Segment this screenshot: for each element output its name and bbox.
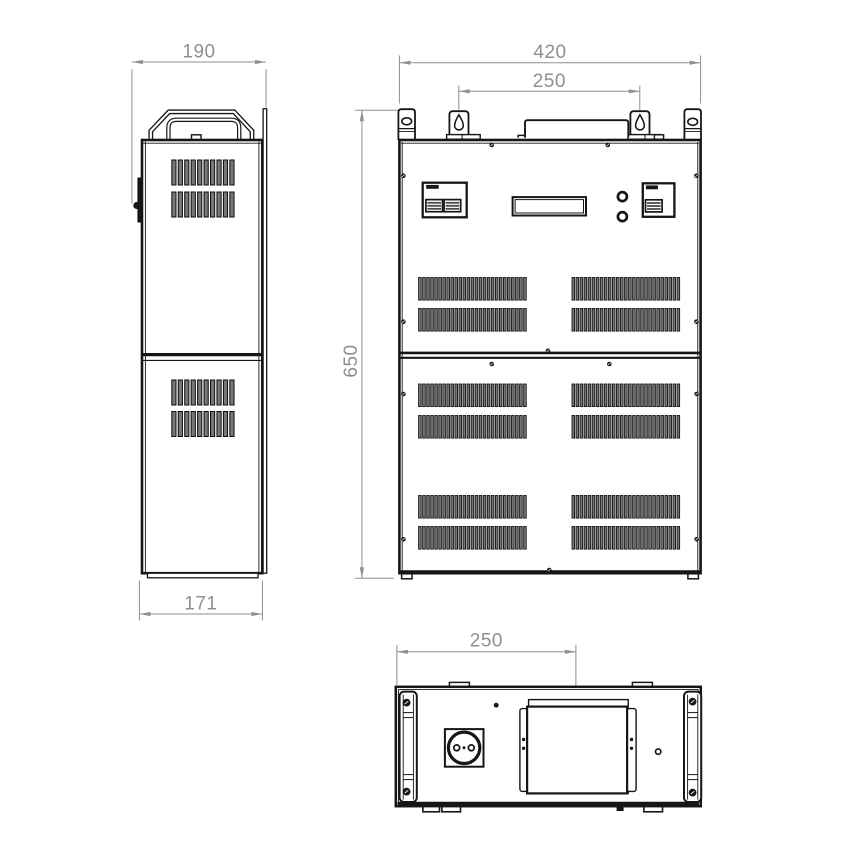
vent-slot <box>230 160 234 185</box>
vent-slot <box>217 412 221 437</box>
vent-slot <box>512 527 515 550</box>
top-raised-plate <box>518 120 628 138</box>
vent-slot <box>230 380 234 405</box>
vent-slot <box>641 527 644 550</box>
vent-slot <box>520 278 523 301</box>
vent-slot <box>495 309 498 332</box>
terminal-cover <box>520 700 636 794</box>
vent-slot <box>520 309 523 332</box>
vent-slot <box>487 496 490 519</box>
vent-slot <box>185 160 189 185</box>
vent-slot <box>641 384 644 407</box>
vent-slot <box>423 278 426 301</box>
vent-slot <box>439 278 442 301</box>
vent-slot <box>230 412 234 437</box>
brand-label <box>426 185 439 189</box>
vent-slot <box>588 527 591 550</box>
vent-slot <box>669 309 672 332</box>
vent-slot <box>596 496 599 519</box>
vent-slot <box>507 309 510 332</box>
vent-slot <box>661 496 664 519</box>
vent-slot <box>625 527 628 550</box>
vent-slot <box>204 380 208 405</box>
vent-slot <box>211 160 215 185</box>
vent-slot <box>637 496 640 519</box>
vent-slot <box>443 496 446 519</box>
vent-slot <box>495 416 498 439</box>
vent-slot <box>576 384 579 407</box>
vent-slot <box>580 527 583 550</box>
vent-slot <box>629 416 632 439</box>
vent-slot <box>661 527 664 550</box>
vent-slot <box>503 416 506 439</box>
vent-slot <box>580 278 583 301</box>
vent-slot <box>463 416 466 439</box>
vent-slot <box>503 527 506 550</box>
vent-slot <box>479 416 482 439</box>
vent-slot <box>467 527 470 550</box>
vent-slot <box>185 192 189 217</box>
vent-slot <box>584 527 587 550</box>
vent-slot <box>471 416 474 439</box>
brand-label <box>646 185 658 189</box>
vent-slot <box>191 380 195 405</box>
vent-slot <box>172 160 176 185</box>
vent-slot <box>665 309 668 332</box>
vent-slot <box>584 309 587 332</box>
vent-slot <box>637 309 640 332</box>
vent-slot <box>178 192 182 217</box>
vent-slot <box>608 496 611 519</box>
vent-slot <box>677 309 680 332</box>
vent-slot <box>439 527 442 550</box>
vent-slot <box>649 527 652 550</box>
vent-slot <box>633 496 636 519</box>
corner-rail-right <box>684 692 701 802</box>
vent-slot <box>625 309 628 332</box>
vent-slot <box>516 527 519 550</box>
vent-slot <box>620 384 623 407</box>
vent-slot <box>649 309 652 332</box>
vent-slot <box>463 527 466 550</box>
vent-slot <box>487 416 490 439</box>
vent-slot <box>520 384 523 407</box>
vent-slot <box>653 496 656 519</box>
vent-slot <box>592 309 595 332</box>
vent-slot <box>191 412 195 437</box>
vent-slot <box>447 309 450 332</box>
vent-slot <box>507 384 510 407</box>
vent-slot <box>439 416 442 439</box>
vent-slot <box>588 278 591 301</box>
vent-slot <box>451 309 454 332</box>
vent-slot <box>475 527 478 550</box>
vent-slot <box>665 278 668 301</box>
vent-slot <box>451 384 454 407</box>
vent-slot <box>191 160 195 185</box>
vent-slot <box>620 496 623 519</box>
vent-slot <box>479 384 482 407</box>
vent-slot <box>198 380 202 405</box>
vent-slot <box>463 278 466 301</box>
vent-slot <box>629 278 632 301</box>
vent-slot <box>483 309 486 332</box>
vent-slot <box>584 384 587 407</box>
vent-slot <box>576 527 579 550</box>
vent-slot <box>230 192 234 217</box>
dim-label-171: 171 <box>184 594 217 615</box>
vent-slot <box>447 527 450 550</box>
vent-slot <box>507 416 510 439</box>
vent-slot <box>487 384 490 407</box>
vent-slot <box>439 496 442 519</box>
vent-slot <box>620 309 623 332</box>
vent-slot <box>499 384 502 407</box>
vent-slot <box>471 309 474 332</box>
vent-slot <box>471 496 474 519</box>
vent-slot <box>524 309 527 332</box>
vent-slot <box>459 416 462 439</box>
vent-slot <box>447 278 450 301</box>
vent-slot <box>447 416 450 439</box>
vent-slot <box>419 527 422 550</box>
vent-slot <box>435 278 438 301</box>
vent-slot <box>427 416 430 439</box>
vent-slot <box>463 384 466 407</box>
vent-slot <box>608 416 611 439</box>
vent-slot <box>524 527 527 550</box>
vent-slot <box>677 384 680 407</box>
vent-slot <box>645 496 648 519</box>
back-panel-strip <box>263 109 267 573</box>
vent-slot <box>625 496 628 519</box>
vent-slot <box>657 416 660 439</box>
vent-slot <box>604 416 607 439</box>
vent-slot <box>423 416 426 439</box>
screw-icon <box>494 703 499 708</box>
vent-slot <box>491 527 494 550</box>
vent-slot <box>677 496 680 519</box>
power-socket-icon[interactable] <box>445 729 484 767</box>
technical-drawing: 190 171 <box>0 0 850 850</box>
vent-slot <box>641 309 644 332</box>
vent-slot <box>483 527 486 550</box>
vent-slot <box>419 416 422 439</box>
vent-slot <box>669 278 672 301</box>
front-view: 420 250 650 <box>341 42 701 579</box>
vent-slot <box>443 416 446 439</box>
vent-slot <box>512 278 515 301</box>
vent-slot <box>178 380 182 405</box>
vent-slot <box>657 278 660 301</box>
vent-slot <box>191 192 195 217</box>
vent-slot <box>625 384 628 407</box>
vent-slot <box>516 416 519 439</box>
front-foot-right <box>688 574 699 579</box>
panel-button-top[interactable] <box>618 192 627 201</box>
vent-slot <box>427 527 430 550</box>
vent-slot <box>483 416 486 439</box>
vent-slot <box>629 496 632 519</box>
vent-slot <box>427 384 430 407</box>
vent-slot <box>211 192 215 217</box>
vent-slot <box>471 527 474 550</box>
vent-slot <box>475 496 478 519</box>
vent-slot <box>223 412 227 437</box>
vent-slot <box>612 384 615 407</box>
circuit-breaker-right[interactable] <box>643 183 675 217</box>
cover-flange-right <box>627 709 636 792</box>
vent-slot <box>520 416 523 439</box>
vent-slot <box>592 384 595 407</box>
vent-slot <box>633 416 636 439</box>
vent-slot <box>576 496 579 519</box>
vent-slot <box>653 278 656 301</box>
vent-slot <box>665 416 668 439</box>
vent-slot <box>172 412 176 437</box>
vent-slot <box>435 384 438 407</box>
vent-slot <box>653 527 656 550</box>
vent-slot <box>204 160 208 185</box>
vent-slot <box>629 309 632 332</box>
vent-slot <box>483 496 486 519</box>
vent-slot <box>419 309 422 332</box>
dim-label-250-bottom: 250 <box>470 631 503 652</box>
vent-slot <box>507 527 510 550</box>
bottom-foot <box>617 806 624 811</box>
vent-slot <box>580 496 583 519</box>
vent-slot <box>665 527 668 550</box>
vent-slot <box>600 384 603 407</box>
vent-slot <box>649 496 652 519</box>
vent-slot <box>451 496 454 519</box>
vent-slot <box>431 278 434 301</box>
vent-slot <box>467 309 470 332</box>
vent-slot <box>491 384 494 407</box>
vent-slot <box>435 309 438 332</box>
vent-slot <box>608 278 611 301</box>
vent-slot <box>677 278 680 301</box>
vent-slot <box>661 384 664 407</box>
vent-slot <box>612 416 615 439</box>
vent-slot <box>576 278 579 301</box>
vent-slot <box>669 416 672 439</box>
vent-slot <box>616 496 619 519</box>
vent-slot <box>427 496 430 519</box>
dim-label-250-top: 250 <box>533 71 566 92</box>
vent-slot <box>503 278 506 301</box>
dim-front-height: 650 <box>341 110 398 578</box>
vent-slot <box>645 309 648 332</box>
vent-slot <box>592 496 595 519</box>
vent-slot <box>612 309 615 332</box>
vent-slot <box>641 496 644 519</box>
vent-slot <box>596 384 599 407</box>
vent-slot <box>439 384 442 407</box>
vent-slot <box>499 278 502 301</box>
vent-slot <box>503 384 506 407</box>
vent-slot <box>637 278 640 301</box>
vent-slot <box>673 309 676 332</box>
vent-slot <box>431 527 434 550</box>
bottom-foot <box>442 807 461 812</box>
vent-slot <box>633 384 636 407</box>
vent-slot <box>616 384 619 407</box>
vent-slot <box>645 416 648 439</box>
vent-slot <box>673 496 676 519</box>
corner-rail-left <box>400 692 417 802</box>
vent-slot <box>677 527 680 550</box>
vent-slot <box>455 527 458 550</box>
vent-slot <box>588 309 591 332</box>
vent-slot <box>204 412 208 437</box>
vent-slot <box>455 416 458 439</box>
vent-slot <box>447 384 450 407</box>
vent-slot <box>491 416 494 439</box>
vent-slot <box>665 384 668 407</box>
panel-button-bottom[interactable] <box>618 212 627 221</box>
vent-slot <box>633 278 636 301</box>
vent-slot <box>604 496 607 519</box>
vent-slot <box>467 496 470 519</box>
vent-slot <box>629 527 632 550</box>
vent-slot <box>503 496 506 519</box>
vent-slot <box>499 527 502 550</box>
vent-slot <box>223 192 227 217</box>
vent-slot <box>616 309 619 332</box>
vent-slot <box>431 384 434 407</box>
vent-slot <box>649 384 652 407</box>
vent-slot <box>572 384 575 407</box>
vent-slot <box>608 309 611 332</box>
vent-slot <box>572 496 575 519</box>
vent-slot <box>673 278 676 301</box>
vent-slot <box>673 416 676 439</box>
vent-slot <box>584 416 587 439</box>
vent-slot <box>467 384 470 407</box>
vent-slot <box>495 496 498 519</box>
vent-slot <box>172 192 176 217</box>
vent-slot <box>463 309 466 332</box>
vent-slot <box>483 384 486 407</box>
vent-slot <box>616 527 619 550</box>
vent-slot <box>423 496 426 519</box>
vent-slot <box>592 527 595 550</box>
vent-slot <box>588 384 591 407</box>
vent-slot <box>653 384 656 407</box>
vent-slot <box>596 309 599 332</box>
vent-slot <box>439 309 442 332</box>
vent-slot <box>669 384 672 407</box>
vent-slot <box>677 416 680 439</box>
vent-slot <box>217 192 221 217</box>
vent-slot <box>592 416 595 439</box>
vent-slot <box>629 384 632 407</box>
vent-slot <box>524 278 527 301</box>
vent-slot <box>588 416 591 439</box>
vent-slot <box>596 527 599 550</box>
vent-slot <box>495 278 498 301</box>
vent-slot <box>673 384 676 407</box>
vent-slot <box>427 309 430 332</box>
vent-slot <box>479 496 482 519</box>
vent-slot <box>580 416 583 439</box>
vent-slot <box>673 527 676 550</box>
vent-slot <box>499 416 502 439</box>
vent-slot <box>198 160 202 185</box>
vent-slot <box>471 278 474 301</box>
vent-slot <box>451 416 454 439</box>
vent-slot <box>612 496 615 519</box>
vent-slot <box>669 527 672 550</box>
vent-slot <box>211 380 215 405</box>
vent-slot <box>580 309 583 332</box>
vent-slot <box>669 496 672 519</box>
vent-slot <box>495 384 498 407</box>
vent-slot <box>475 384 478 407</box>
vent-slot <box>491 278 494 301</box>
vent-slot <box>608 384 611 407</box>
vent-slot <box>423 309 426 332</box>
vent-slot <box>584 278 587 301</box>
vent-slot <box>580 384 583 407</box>
vent-slot <box>507 496 510 519</box>
vent-slot <box>423 384 426 407</box>
vent-slot <box>459 309 462 332</box>
vent-slot <box>459 527 462 550</box>
keyhole-tab-left <box>447 111 481 139</box>
vent-slot <box>499 309 502 332</box>
vent-slot <box>604 527 607 550</box>
side-bottom-plate <box>148 573 259 578</box>
vent-slot <box>600 416 603 439</box>
vent-slot <box>633 527 636 550</box>
vent-slot <box>645 527 648 550</box>
vent-slot <box>616 416 619 439</box>
vent-slot <box>661 278 664 301</box>
vent-slot <box>657 527 660 550</box>
vent-slot <box>645 278 648 301</box>
bottom-view: 250 <box>396 631 701 812</box>
dim-front-mount-spacing: 250 <box>459 71 640 110</box>
vent-slot <box>572 309 575 332</box>
vent-slot <box>600 496 603 519</box>
vent-hole <box>656 749 661 754</box>
dim-label-420: 420 <box>533 42 566 63</box>
vent-slot <box>475 416 478 439</box>
vent-slot <box>459 496 462 519</box>
vent-slot <box>507 278 510 301</box>
vent-slot <box>487 278 490 301</box>
vent-slot <box>455 278 458 301</box>
vent-slot <box>459 384 462 407</box>
vent-slot <box>435 527 438 550</box>
vent-slot <box>637 384 640 407</box>
vent-slot <box>185 380 189 405</box>
vent-slot <box>217 380 221 405</box>
vent-slot <box>198 412 202 437</box>
vent-slot <box>657 384 660 407</box>
drawing-canvas: 190 171 <box>0 0 850 850</box>
vent-slot <box>443 384 446 407</box>
vent-slot <box>491 309 494 332</box>
vent-slot <box>625 416 628 439</box>
vent-slot <box>198 192 202 217</box>
vent-slot <box>641 416 644 439</box>
vent-slot <box>479 278 482 301</box>
vent-slot <box>491 496 494 519</box>
circuit-breaker-left[interactable] <box>423 183 467 218</box>
